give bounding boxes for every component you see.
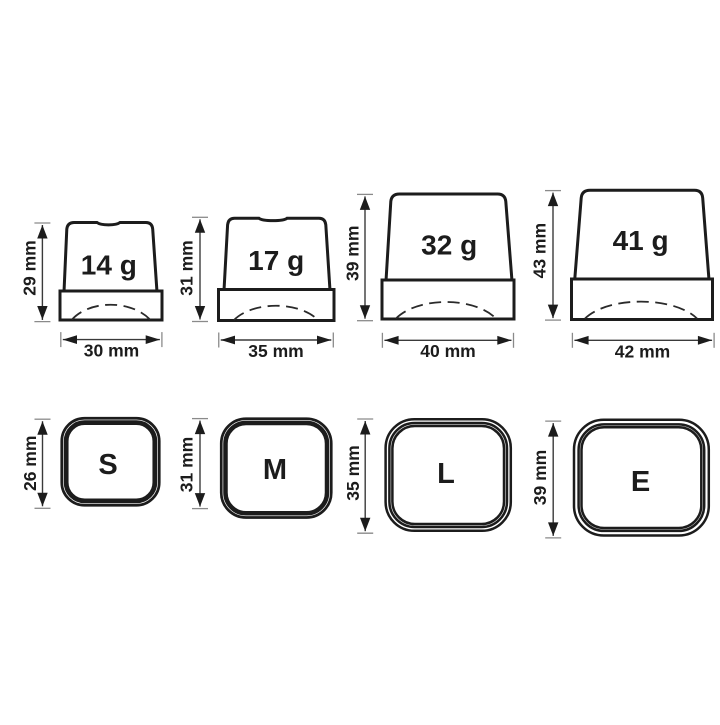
svg-text:L: L bbox=[437, 458, 455, 490]
svg-text:32 g: 32 g bbox=[421, 230, 477, 261]
svg-text:31 mm: 31 mm bbox=[177, 437, 197, 492]
svg-text:40 mm: 40 mm bbox=[420, 341, 475, 361]
svg-text:M: M bbox=[263, 454, 287, 486]
svg-text:17 g: 17 g bbox=[248, 245, 304, 276]
svg-text:41 g: 41 g bbox=[613, 225, 669, 256]
svg-text:31 mm: 31 mm bbox=[177, 240, 197, 295]
svg-text:S: S bbox=[98, 449, 117, 481]
svg-text:E: E bbox=[631, 466, 650, 498]
svg-text:26 mm: 26 mm bbox=[20, 436, 40, 491]
svg-text:30 mm: 30 mm bbox=[84, 340, 139, 360]
svg-text:14 g: 14 g bbox=[81, 250, 137, 281]
svg-text:43 mm: 43 mm bbox=[530, 223, 550, 278]
svg-text:39 mm: 39 mm bbox=[343, 226, 363, 281]
svg-text:29 mm: 29 mm bbox=[20, 240, 40, 295]
svg-text:35 mm: 35 mm bbox=[248, 341, 303, 361]
svg-text:39 mm: 39 mm bbox=[530, 450, 550, 505]
svg-text:35 mm: 35 mm bbox=[343, 445, 363, 500]
svg-text:42 mm: 42 mm bbox=[615, 341, 670, 361]
